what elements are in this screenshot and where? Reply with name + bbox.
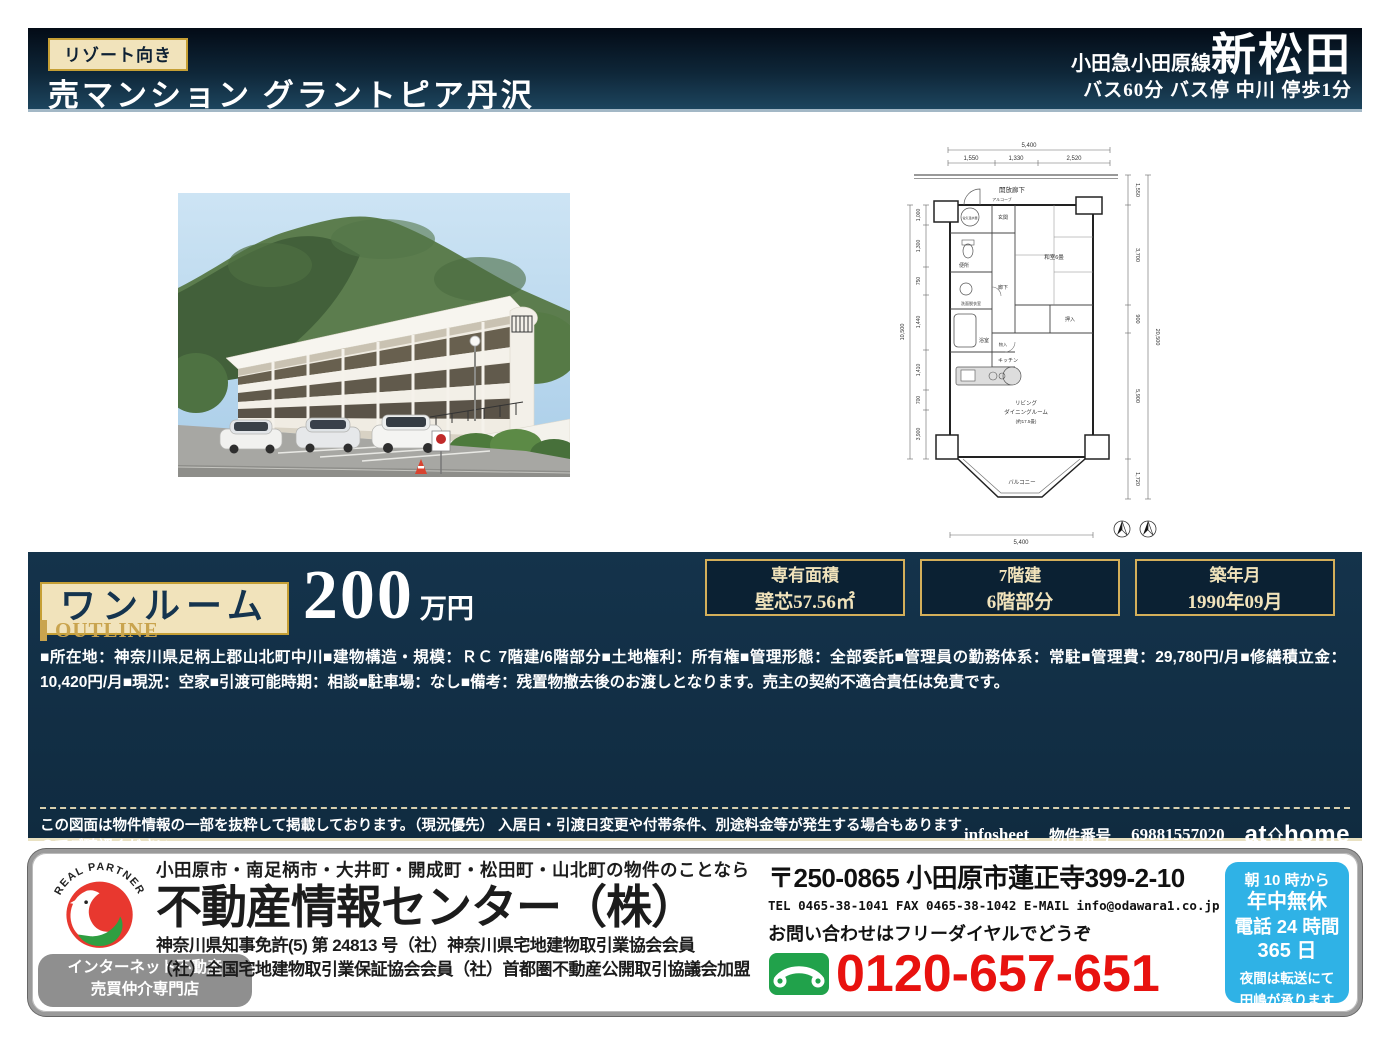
fp-dim: 10,500 <box>900 324 906 341</box>
outline-title: OUTLINE <box>55 618 159 643</box>
athome-at: at <box>1245 821 1267 849</box>
freedial-icon <box>768 952 830 996</box>
photo-forest-texture <box>331 219 435 259</box>
fp-kitchen-counter-end <box>1003 367 1021 385</box>
photo-forest-texture <box>434 257 526 301</box>
internet-badge-line2: 売買仲介専門店 <box>38 979 252 1001</box>
footer: REAL PARTNER インターネット不動産 売買仲介専門店 小田原市・南足柄… <box>28 849 1362 1016</box>
freedial-number: 0120-657-651 <box>836 948 1160 1000</box>
fp-pillar <box>1076 197 1102 214</box>
info-box-area: 専有面積 壁芯57.56㎡ <box>705 559 905 616</box>
info-boxes: 専有面積 壁芯57.56㎡ 7階建 6階部分 築年月 1990年09月 <box>705 559 1335 616</box>
fp-label-hallway: 廊下 <box>998 284 1008 291</box>
hours-line: 田嶋が承ります <box>1225 989 1349 1009</box>
company-block: 小田原市・南足柄市・大井町・開成町・松田町・山北町の物件のことなら 不動産情報セ… <box>156 857 764 983</box>
fp-dim: 3,900 <box>916 428 922 441</box>
fp-label-japanese-room: 和室6畳 <box>1044 253 1064 261</box>
hours-line: 電話 24 時間 <box>1225 915 1349 939</box>
info-box-label: 専有面積 <box>707 561 903 586</box>
price-unit: 万円 <box>420 587 474 626</box>
fp-label-water-heater: 電気温水器 <box>962 215 977 220</box>
info-box-label: 築年月 <box>1137 561 1333 586</box>
header-band: リゾート向き 売マンション グラントピア丹沢 小田急小田原線 新松田 バス60分… <box>28 28 1362 112</box>
hours-line: 朝 10 時から <box>1225 869 1349 890</box>
license-line-1: 神奈川県知事免許(5) 第 24813 号（社）神奈川県宅地建物取引業協会会員 <box>156 934 764 959</box>
fp-dim: 20,500 <box>1154 329 1160 346</box>
fp-label-closet: 押入 <box>1065 316 1075 323</box>
contact-block: 〒250-0865 小田原市蓮正寺399-2-10 TEL 0465-38-10… <box>768 858 1226 1000</box>
property-no-label: 物件番号 <box>1049 824 1111 846</box>
fp-label-alcove: アルコーブ <box>992 196 1012 202</box>
fp-kitchen-sink <box>961 370 975 381</box>
fp-dim: 5,400 <box>1013 540 1029 546</box>
station-name: 新松田 <box>1211 32 1352 79</box>
hours-line: 年中無休 <box>1225 890 1349 915</box>
fp-dim: 5,900 <box>1134 389 1140 403</box>
inquiry-line: お問い合わせはフリーダイヤルでどうぞ <box>768 920 1226 946</box>
company-name: 不動産情報センター（株） <box>156 882 764 934</box>
tel-fax-email: TEL 0465-38-1041 FAX 0465-38-1042 E-MAIL… <box>768 898 1226 913</box>
info-box-label: 7階建 <box>922 561 1118 586</box>
fp-label-bath: 浴室 <box>979 337 989 344</box>
info-box-built: 築年月 1990年09月 <box>1135 559 1335 616</box>
house-icon <box>1268 826 1283 842</box>
fp-dim: 750 <box>916 277 922 286</box>
page-title: 売マンション グラントピア丹沢 <box>48 70 535 115</box>
fp-dim: 1,330 <box>1008 156 1024 162</box>
photo-lamp-globe <box>470 336 480 346</box>
service-areas: 小田原市・南足柄市・大井町・開成町・松田町・山北町の物件のことなら <box>156 857 764 882</box>
fp-dim: 1,000 <box>916 209 922 222</box>
athome-logo: at home <box>1245 821 1350 849</box>
real-partner-logo: REAL PARTNER <box>44 855 156 953</box>
access-info: バス60分 バス停 中川 停歩1分 <box>1071 75 1352 102</box>
fp-dim: 3,700 <box>1134 248 1140 262</box>
photo-forest-texture <box>228 243 312 287</box>
fp-label-balcony: バルコニー <box>1008 479 1035 486</box>
fp-dim: 1,440 <box>916 316 922 329</box>
fp-label-kitchen: キッチン <box>998 358 1018 364</box>
infosheet-label: infosheet <box>964 825 1029 845</box>
fp-dim: 1,550 <box>1134 183 1140 197</box>
fp-pillar <box>1085 435 1109 459</box>
property-no: 69881557020 <box>1131 825 1225 845</box>
price-value: 200 <box>303 561 414 631</box>
info-box-value: 6階部分 <box>922 587 1118 614</box>
fp-dim: 1,300 <box>916 240 922 253</box>
fp-dim: 1,550 <box>963 156 979 162</box>
outline-body: ■所在地：神奈川県足柄上郡山北町中川■建物構造・規模：ＲＣ 7階建/6階部分■土… <box>40 646 1346 696</box>
rail-line-label: 小田急小田原線 <box>1071 47 1211 76</box>
flyer-page: リゾート向き 売マンション グラントピア丹沢 小田急小田原線 新松田 バス60分… <box>0 0 1390 1042</box>
info-box-value: 1990年09月 <box>1137 587 1333 614</box>
fp-label-storage: 物入 <box>999 341 1008 348</box>
fp-label-living-2: ダイニングルーム <box>1004 408 1048 416</box>
outline-bar-icon <box>40 620 47 641</box>
freedial-row: 0120-657-651 <box>768 948 1226 1000</box>
station-block: 小田急小田原線 新松田 バス60分 バス停 中川 停歩1分 <box>1071 32 1352 102</box>
fp-dim: 5,400 <box>1021 143 1037 149</box>
outline-heading: OUTLINE <box>40 618 159 643</box>
fp-dim: 700 <box>916 396 922 405</box>
dashed-separator <box>40 807 1350 809</box>
resort-badge: リゾート向き <box>48 38 188 71</box>
fp-pillar <box>936 435 958 459</box>
postal-address: 〒250-0865 小田原市蓮正寺399-2-10 <box>768 858 1226 895</box>
fp-label-entrance: 玄関 <box>998 214 1008 221</box>
logo-bird-eye <box>84 900 88 904</box>
floorplan-drawing: 5,400 1,550 1,330 2,520 開放廊下 1,550 3,700 <box>900 137 1165 547</box>
info-band: ワンルーム 200 万円 専有面積 壁芯57.56㎡ 7階建 6階部分 築年月 … <box>28 552 1362 841</box>
hours-line: 365 日 <box>1225 939 1349 964</box>
property-photo <box>178 193 570 477</box>
main-area: 5,400 1,550 1,330 2,520 開放廊下 1,550 3,700 <box>28 112 1362 552</box>
info-box-value: 壁芯57.56㎡ <box>707 587 903 614</box>
fp-label-living-3: (約17.5畳) <box>1016 418 1037 425</box>
photo-cone-stripe <box>418 466 424 469</box>
fp-pillar <box>934 201 958 222</box>
hours-line: 夜間は転送にて <box>1225 967 1349 987</box>
fp-label-toilet: 便所 <box>959 262 969 269</box>
fp-label-living-1: リビング <box>1015 399 1038 407</box>
athome-home: home <box>1284 821 1350 849</box>
license-line-2: （社）全国宅地建物取引業保証協会会員（社）首都圏不動産公開取引協議会加盟 <box>156 958 764 983</box>
fp-dim: 2,520 <box>1066 156 1082 162</box>
fp-dim: 1,410 <box>916 364 922 377</box>
fp-label-corridor: 開放廊下 <box>999 185 1026 194</box>
photo-sign-mark <box>436 434 446 444</box>
fp-dim: 1,720 <box>1134 472 1140 486</box>
info-box-floors: 7階建 6階部分 <box>920 559 1120 616</box>
fp-dim: 900 <box>1134 314 1140 323</box>
hours-box: 朝 10 時から 年中無休 電話 24 時間 365 日 夜間は転送にて 田嶋が… <box>1225 862 1349 1003</box>
fp-label-washroom: 洗面脱衣室 <box>961 300 981 306</box>
